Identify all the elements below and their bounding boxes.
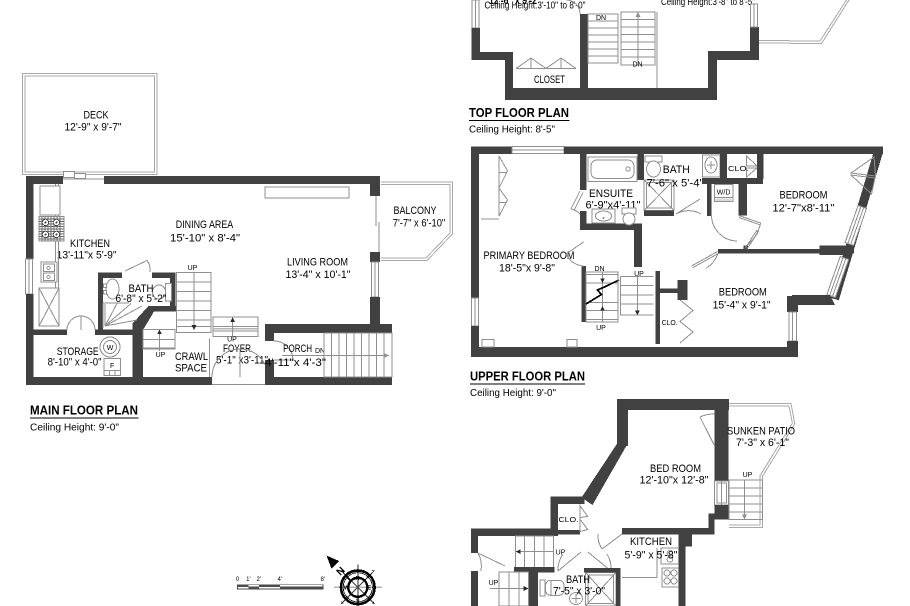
svg-text:SUNKEN PATIO: SUNKEN PATIO	[727, 426, 795, 438]
svg-text:CLOSET: CLOSET	[534, 74, 565, 86]
svg-text:TOP FLOOR PLAN: TOP FLOOR PLAN	[469, 106, 569, 120]
svg-text:Ceiling Height: 9'-0": Ceiling Height: 9'-0"	[30, 422, 119, 434]
svg-text:CLO.: CLO.	[728, 166, 749, 173]
svg-text:6'-8" x 5'-2": 6'-8" x 5'-2"	[116, 293, 167, 305]
svg-text:13'-4" x 10'-1": 13'-4" x 10'-1"	[286, 269, 351, 281]
svg-text:KITCHEN: KITCHEN	[630, 536, 672, 548]
svg-text:DN: DN	[596, 15, 606, 22]
svg-text:UP: UP	[634, 271, 644, 278]
svg-text:DINING AREA: DINING AREA	[176, 219, 234, 231]
svg-text:PORCH: PORCH	[283, 343, 312, 355]
svg-text:DN: DN	[632, 62, 642, 69]
svg-text:CRAWL: CRAWL	[175, 351, 208, 363]
svg-text:UP: UP	[489, 580, 499, 587]
svg-text:UP: UP	[556, 550, 566, 557]
svg-text:UPPER FLOOR PLAN: UPPER FLOOR PLAN	[470, 370, 585, 384]
svg-text:SPACE: SPACE	[175, 363, 207, 375]
svg-text:N: N	[356, 576, 360, 582]
svg-text:UP: UP	[743, 472, 753, 479]
svg-text:7'-5" x 3'-0": 7'-5" x 3'-0"	[553, 586, 605, 598]
svg-text:12'-10"x 12'-8": 12'-10"x 12'-8"	[640, 475, 709, 487]
svg-text:Ceiling Height:3'-10" to 8'-0": Ceiling Height:3'-10" to 8'-0"	[485, 0, 586, 12]
svg-text:S: S	[356, 598, 360, 604]
svg-text:UP: UP	[596, 325, 606, 332]
svg-text:13'-11"x 5'-9": 13'-11"x 5'-9"	[57, 250, 117, 262]
svg-text:Ceiling Height:3'-8" to 8'-5": Ceiling Height:3'-8" to 8'-5"	[661, 0, 755, 8]
svg-text:18'-5"x 9'-8": 18'-5"x 9'-8"	[499, 263, 555, 275]
svg-text:BALCONY: BALCONY	[394, 205, 438, 217]
svg-text:4': 4'	[278, 577, 282, 583]
svg-text:BEDROOM: BEDROOM	[719, 287, 767, 299]
svg-text:LIVING ROOM: LIVING ROOM	[287, 257, 348, 269]
svg-text:7'-7" x 6'-10": 7'-7" x 6'-10"	[393, 218, 446, 230]
svg-text:MAIN FLOOR PLAN: MAIN FLOOR PLAN	[30, 404, 138, 418]
svg-text:2': 2'	[257, 577, 261, 583]
svg-text:15'-10" x 8'-4": 15'-10" x 8'-4"	[170, 233, 240, 245]
svg-text:BEDROOM: BEDROOM	[780, 190, 828, 202]
svg-text:CLO.: CLO.	[559, 517, 579, 524]
svg-text:8'-10" x 4'-0": 8'-10" x 4'-0"	[48, 357, 102, 369]
svg-text:F: F	[110, 363, 114, 370]
svg-text:Ceiling Height: 8'-5": Ceiling Height: 8'-5"	[469, 124, 555, 136]
svg-text:UP: UP	[188, 265, 198, 272]
svg-text:4'-11"x 4'-3": 4'-11"x 4'-3"	[265, 357, 326, 369]
svg-text:DECK: DECK	[84, 110, 110, 122]
svg-text:KITCHEN: KITCHEN	[70, 238, 110, 250]
svg-text:BATH: BATH	[566, 574, 590, 586]
svg-text:CLO.: CLO.	[662, 320, 678, 327]
svg-text:E: E	[367, 586, 371, 592]
svg-text:Ceiling Height: 9'-0": Ceiling Height: 9'-0"	[470, 387, 556, 399]
svg-text:DN: DN	[594, 266, 604, 273]
svg-text:W/D: W/D	[717, 190, 731, 197]
svg-text:BED ROOM: BED ROOM	[650, 463, 701, 475]
svg-text:5'-9" x 5'-8": 5'-9" x 5'-8"	[625, 550, 678, 562]
svg-text:UP: UP	[156, 352, 166, 359]
svg-text:W: W	[344, 586, 350, 592]
svg-text:8': 8'	[321, 577, 325, 583]
svg-text:7'-6" x 5'-4": 7'-6" x 5'-4"	[647, 178, 704, 190]
svg-text:12'-7"x8'-11": 12'-7"x8'-11"	[772, 203, 834, 215]
svg-text:BATH: BATH	[663, 164, 690, 176]
svg-text:PRIMARY BEDROOM: PRIMARY BEDROOM	[484, 250, 575, 262]
svg-text:5'-1" x3'-11": 5'-1" x3'-11"	[216, 355, 268, 367]
svg-text:7'-3" x 6'-1": 7'-3" x 6'-1"	[736, 437, 789, 449]
svg-text:12'-9" x 9'-7": 12'-9" x 9'-7"	[65, 122, 122, 134]
svg-text:W: W	[107, 345, 114, 352]
svg-text:15'-4" x 9'-1": 15'-4" x 9'-1"	[713, 300, 771, 312]
svg-text:1': 1'	[246, 577, 250, 583]
svg-text:ENSUITE: ENSUITE	[589, 188, 633, 200]
